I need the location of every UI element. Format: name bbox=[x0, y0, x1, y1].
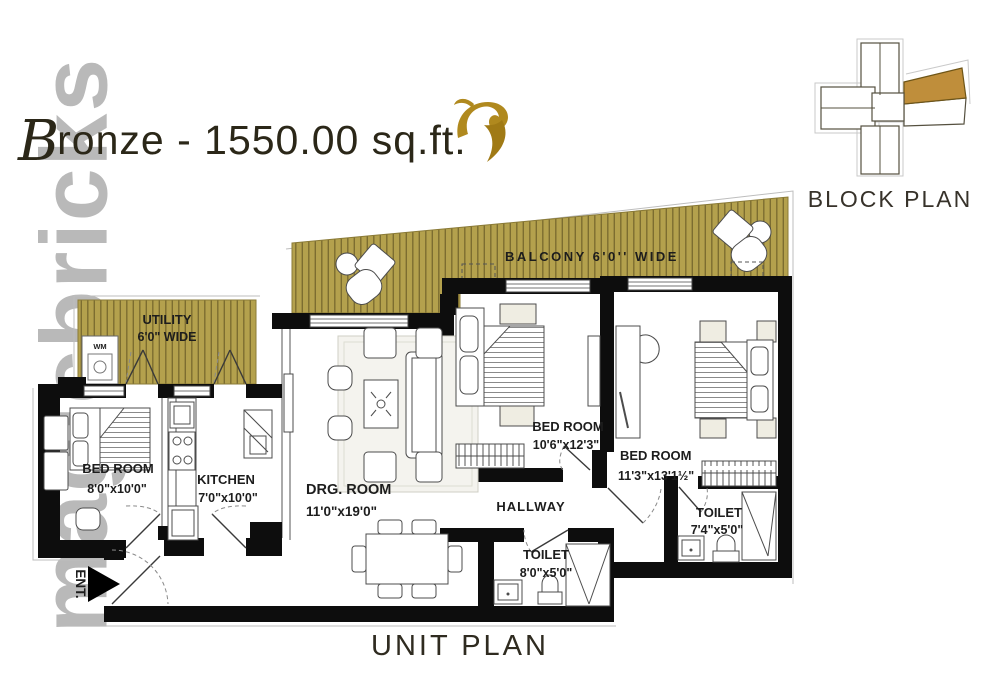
bedroom2-dims: 10'6"x12'3" bbox=[533, 438, 600, 452]
title-initial: B bbox=[18, 109, 59, 174]
drawing-room: DRG. ROOM 11'0"x19'0" bbox=[284, 328, 478, 598]
toilet2-name: TOILET bbox=[696, 505, 742, 520]
entrance-arrow-icon bbox=[88, 566, 120, 602]
bedroom3-dims: 11'3"x13'1½" bbox=[618, 469, 694, 483]
bedroom2-name: BED ROOM bbox=[532, 419, 604, 434]
toilet1-dims: 8'0"x5'0" bbox=[520, 566, 573, 580]
utility: WM UTILITY 6'0" WIDE bbox=[78, 300, 256, 384]
bedroom1-name: BED ROOM bbox=[82, 461, 154, 476]
unit-plan-title: UNIT PLAN bbox=[320, 630, 600, 663]
block-plan-title: BLOCK PLAN bbox=[800, 186, 980, 213]
page-title: Bronze - 1550.00 sq.ft. bbox=[18, 116, 467, 168]
balcony: BALCONY 6'0'' WIDE bbox=[292, 197, 788, 313]
washing-machine-label: WM bbox=[93, 342, 106, 351]
bedroom1-dims: 8'0"x10'0" bbox=[87, 482, 147, 496]
balcony-label: BALCONY 6'0'' WIDE bbox=[505, 249, 679, 264]
hallway-name: HALLWAY bbox=[496, 499, 565, 514]
kitchen: KITCHEN 7'0"x10'0" bbox=[168, 398, 272, 540]
highlighted-unit bbox=[904, 68, 966, 104]
title-text: ronze - 1550.00 sq.ft. bbox=[57, 117, 466, 163]
kitchen-name: KITCHEN bbox=[197, 472, 255, 487]
kitchen-dims: 7'0"x10'0" bbox=[198, 491, 258, 505]
drg-room-dims: 11'0"x19'0" bbox=[306, 504, 377, 519]
floor-plan-page: magicbricks Bronze - 1550.00 sq.ft. BLOC… bbox=[0, 0, 1000, 685]
entrance: ENT. bbox=[73, 566, 120, 602]
toilet-1: TOILET 8'0"x5'0" bbox=[494, 544, 610, 606]
bedroom-3: BED ROOM 11'3"x13'1½" bbox=[616, 321, 776, 486]
utility-name: UTILITY bbox=[142, 312, 191, 327]
hallway: HALLWAY bbox=[496, 499, 565, 514]
bedroom-1: BED ROOM 8'0"x10'0" bbox=[44, 408, 154, 530]
drg-room-name: DRG. ROOM bbox=[306, 482, 391, 498]
block-plan bbox=[815, 39, 970, 176]
flourish-icon bbox=[452, 94, 514, 166]
toilet1-name: TOILET bbox=[523, 547, 569, 562]
toilet2-dims: 7'4"x5'0" bbox=[691, 523, 744, 537]
utility-dims: 6'0" WIDE bbox=[138, 330, 197, 344]
bedroom3-name: BED ROOM bbox=[620, 448, 692, 463]
entrance-label: ENT. bbox=[73, 569, 88, 598]
